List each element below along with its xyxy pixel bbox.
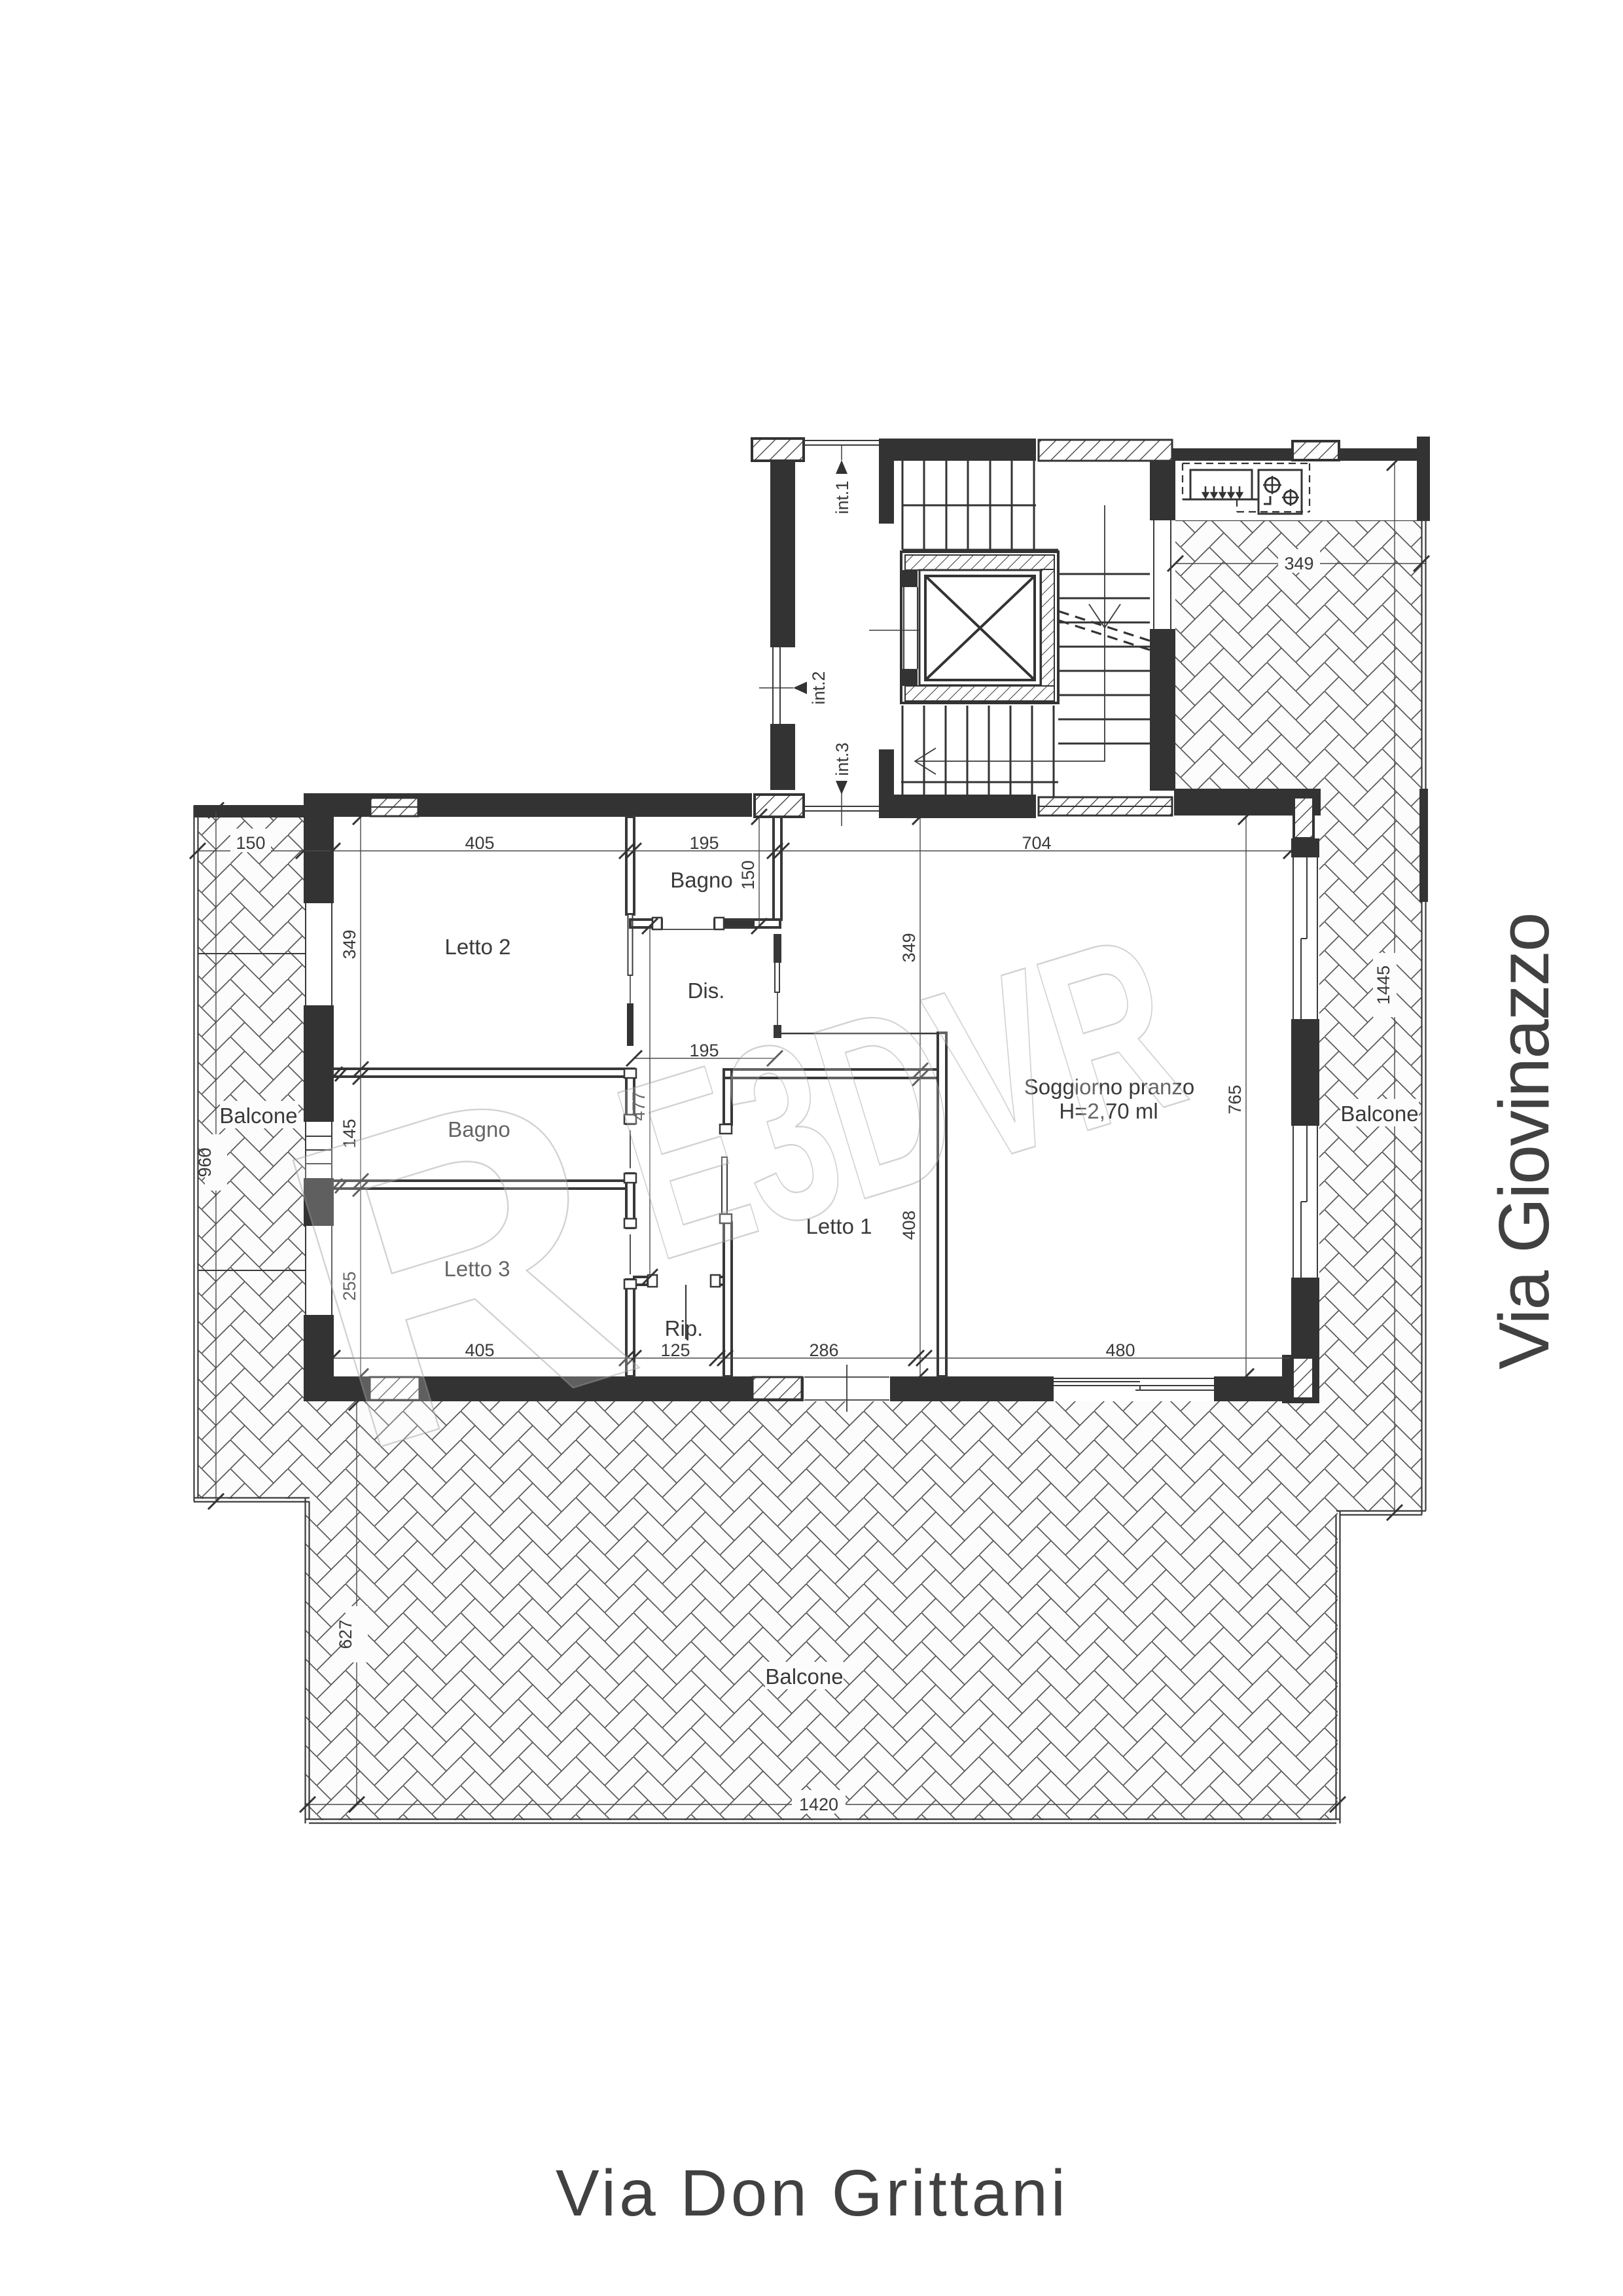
svg-text:Balcone: Balcone (765, 1664, 843, 1689)
svg-text:765: 765 (1225, 1085, 1245, 1114)
svg-text:405: 405 (465, 833, 494, 853)
svg-text:int.2: int.2 (809, 671, 829, 704)
svg-text:Via Giovinazzo: Via Giovinazzo (1484, 913, 1564, 1369)
svg-text:Letto 2: Letto 2 (445, 935, 511, 959)
svg-text:Via Don Grittani: Via Don Grittani (556, 2157, 1069, 2230)
svg-text:150: 150 (738, 860, 758, 889)
svg-text:704: 704 (1022, 833, 1051, 853)
svg-text:125: 125 (660, 1340, 690, 1360)
svg-text:Dis.: Dis. (688, 978, 725, 1003)
svg-text:Bagno: Bagno (670, 868, 732, 892)
svg-text:195: 195 (689, 833, 719, 853)
svg-text:1445: 1445 (1374, 965, 1393, 1005)
svg-text:480: 480 (1105, 1340, 1135, 1360)
svg-text:627: 627 (336, 1619, 355, 1649)
svg-text:960: 960 (195, 1147, 215, 1177)
svg-text:int.1: int.1 (832, 480, 852, 514)
svg-text:1420: 1420 (799, 1795, 838, 1814)
svg-text:286: 286 (809, 1340, 838, 1360)
svg-text:349: 349 (340, 929, 359, 959)
svg-text:349: 349 (1284, 554, 1313, 573)
svg-text:int.3: int.3 (832, 742, 852, 776)
svg-text:Rip.: Rip. (665, 1316, 704, 1340)
svg-text:Balcone: Balcone (1340, 1102, 1418, 1126)
svg-text:150: 150 (236, 833, 265, 853)
